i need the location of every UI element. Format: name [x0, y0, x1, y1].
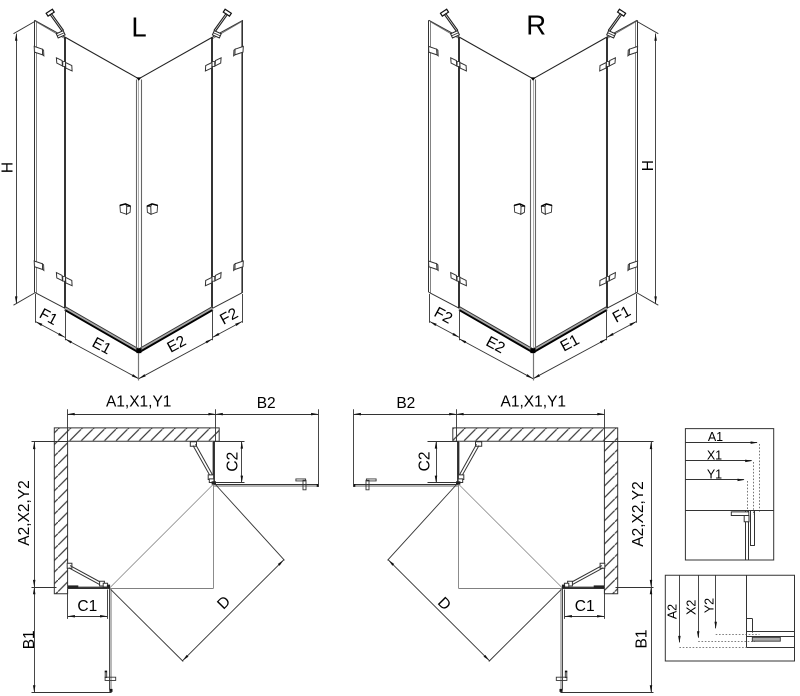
svg-text:X1: X1 [707, 449, 722, 463]
svg-text:L: L [131, 12, 146, 43]
svg-text:B2: B2 [257, 395, 276, 412]
svg-text:R: R [526, 10, 546, 41]
svg-text:A2,X2,Y2: A2,X2,Y2 [630, 481, 647, 547]
svg-text:C1: C1 [575, 598, 595, 615]
svg-text:H: H [0, 162, 17, 173]
svg-text:B1: B1 [21, 630, 38, 649]
svg-text:A2: A2 [666, 604, 680, 619]
svg-text:A1,X1,Y1: A1,X1,Y1 [106, 394, 172, 411]
svg-text:A2,X2,Y2: A2,X2,Y2 [16, 480, 33, 546]
svg-text:A1,X1,Y1: A1,X1,Y1 [501, 394, 567, 411]
svg-text:C2: C2 [417, 451, 434, 471]
svg-text:B1: B1 [634, 630, 651, 649]
svg-text:Y2: Y2 [702, 598, 716, 613]
svg-text:Y1: Y1 [707, 467, 722, 481]
svg-text:H: H [640, 160, 657, 171]
svg-text:X2: X2 [685, 600, 699, 615]
svg-text:C1: C1 [77, 598, 97, 615]
svg-text:C2: C2 [224, 452, 241, 472]
svg-text:B2: B2 [396, 395, 415, 412]
svg-text:A1: A1 [708, 430, 723, 444]
